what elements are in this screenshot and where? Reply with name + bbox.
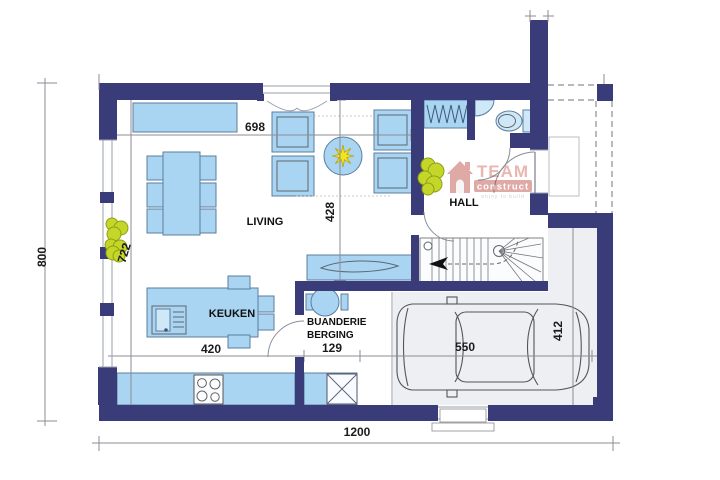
dim-text-428: 428 — [323, 202, 337, 222]
wall-garage-east — [597, 228, 613, 405]
dim-text-1200: 1200 — [344, 425, 371, 439]
armchair — [374, 110, 412, 150]
room-label-living: LIVING — [247, 216, 284, 228]
stool — [228, 276, 250, 289]
wall-right-lower — [530, 193, 548, 215]
room-label-hall: HALL — [449, 197, 479, 209]
window-mullion — [100, 303, 114, 316]
dining-chair — [200, 156, 216, 180]
faucet-icon — [164, 328, 168, 332]
logo-door-icon — [456, 180, 464, 194]
stool — [228, 335, 250, 348]
coat-closet — [424, 100, 470, 128]
sideboard — [133, 103, 237, 132]
garage-step — [440, 409, 486, 422]
wall-wc-west — [467, 100, 475, 140]
dim-text-420: 420 — [201, 342, 221, 356]
wall-left-top — [99, 83, 117, 140]
toilet-bowl — [496, 111, 522, 131]
garage-step-outer — [432, 423, 494, 431]
armchair — [374, 153, 412, 193]
dim-text-550: 550 — [455, 340, 475, 354]
dining-chair — [147, 209, 163, 233]
dining-chair — [147, 183, 163, 207]
floor-plan-drawing: LIVING HALL KEUKEN BUANDERIE BERGING 698… — [0, 0, 720, 480]
logo-tagline-text: enjoy to build — [481, 194, 524, 200]
window-jamb — [257, 94, 264, 101]
light-star-icon — [332, 145, 354, 167]
dim-text-412: 412 — [551, 321, 565, 341]
logo-brand-text: TEAM — [477, 162, 529, 181]
room-label-laundry-1: BUANDERIE — [307, 317, 367, 328]
washing-machine — [311, 288, 339, 316]
dining-table — [163, 152, 200, 235]
wall-wc-south — [510, 133, 548, 148]
window-jamb — [330, 94, 337, 101]
wall-garage-north — [548, 213, 613, 228]
sink-bowl — [156, 309, 170, 331]
wall-living-hall — [411, 100, 424, 215]
dining-chair — [200, 209, 216, 233]
stool — [258, 314, 274, 330]
dim-text-800: 800 — [35, 247, 49, 267]
dim-text-129: 129 — [322, 341, 342, 355]
dining-chair — [200, 183, 216, 207]
washer-tab — [341, 294, 348, 310]
dining-chair — [147, 156, 163, 180]
wall-bottom — [99, 405, 613, 421]
wall-chimney — [530, 20, 548, 100]
logo-sub-text: construct — [477, 182, 529, 193]
wall-left-bottom — [98, 367, 117, 405]
wall-laundry-west-lower — [295, 357, 304, 405]
floor-plan-page: LIVING HALL KEUKEN BUANDERIE BERGING 698… — [0, 0, 720, 480]
logo-chimney-icon — [465, 162, 470, 170]
dim-text-698: 698 — [245, 120, 265, 134]
room-label-laundry-2: BERGING — [307, 330, 354, 341]
stool — [258, 296, 274, 312]
column — [597, 84, 613, 101]
wall-laundry-north — [295, 281, 548, 291]
room-label-kitchen: KEUKEN — [209, 308, 256, 320]
window-mullion — [100, 192, 114, 203]
staircase — [420, 238, 543, 288]
wall-laundry-west-upper — [295, 281, 304, 315]
